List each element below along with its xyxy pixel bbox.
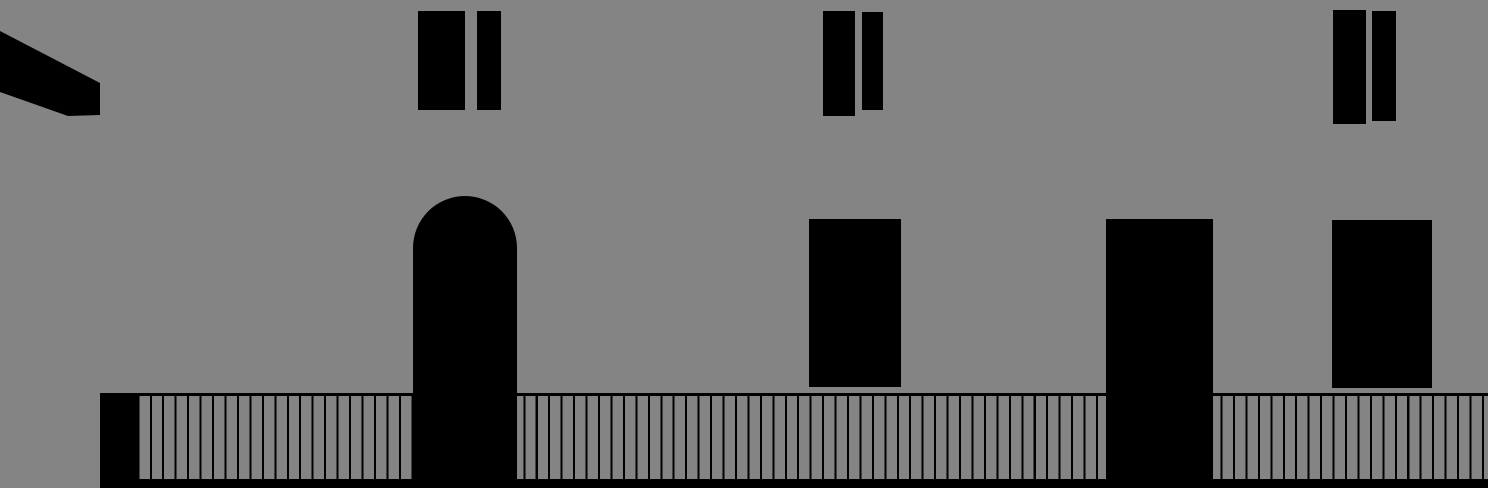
- boardwalk-fence: [100, 393, 1488, 479]
- window-1-left: [418, 11, 465, 110]
- window-2-left: [823, 11, 855, 116]
- arched-doorway: [413, 196, 517, 488]
- roof-beam: [0, 0, 102, 120]
- ground-strip: [100, 479, 1488, 488]
- fence-end-post: [100, 393, 139, 488]
- doorway-left: [809, 219, 901, 387]
- window-1-right: [477, 11, 501, 110]
- window-3-left: [1333, 10, 1366, 124]
- window-3-right: [1372, 11, 1396, 121]
- window-2-right: [862, 12, 883, 110]
- doorway-right: [1332, 220, 1432, 388]
- doorway-tall: [1106, 219, 1213, 488]
- game-scene[interactable]: [0, 0, 1488, 488]
